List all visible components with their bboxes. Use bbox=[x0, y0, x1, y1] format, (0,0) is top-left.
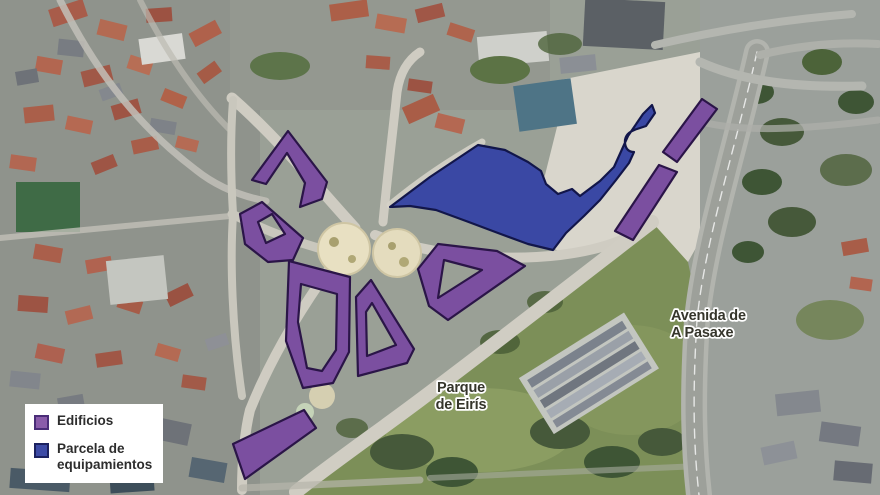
planning-map-graphic: Parquede EirísAvenida deA Pasaxe Edifici… bbox=[0, 0, 880, 495]
legend-item-edificios: Edificios bbox=[34, 413, 155, 430]
legend-item-parcela: Parcela de equipamientos bbox=[34, 441, 155, 473]
legend-label-parcela: Parcela de equipamientos bbox=[57, 441, 155, 473]
map-label-parque-de-eiris: Parquede Eirís bbox=[436, 380, 487, 413]
legend: EdificiosParcela de equipamientos bbox=[25, 404, 163, 483]
legend-label-edificios: Edificios bbox=[57, 413, 113, 429]
legend-swatch-parcela bbox=[34, 443, 49, 458]
legend-swatch-edificios bbox=[34, 415, 49, 430]
